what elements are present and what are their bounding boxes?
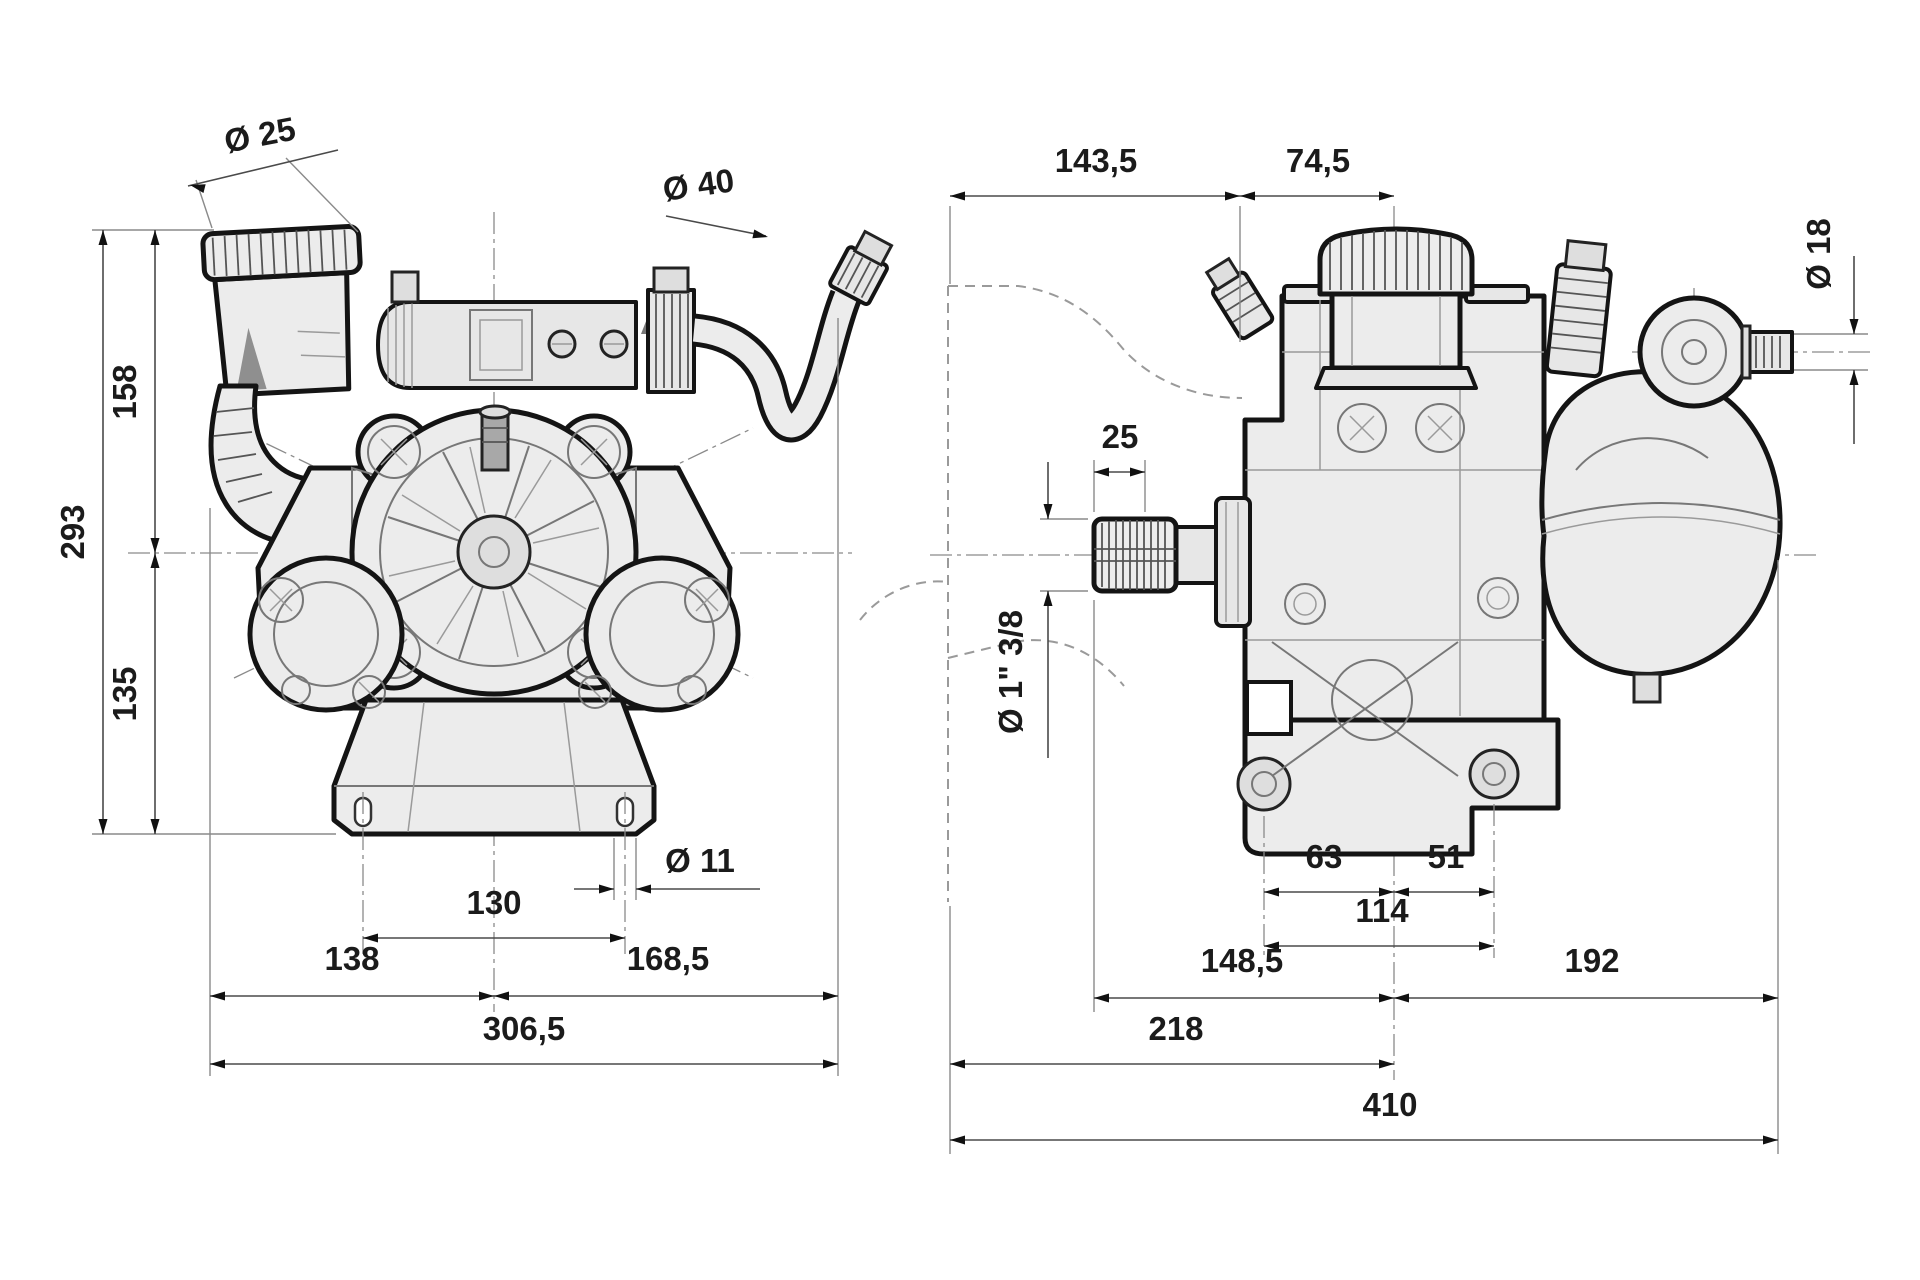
dim-width-left: 138 [324,940,379,977]
pump-technical-drawing: 158 293 135 Ø 25 Ø 40 130 Ø 11 138 168,5 [0,0,1920,1280]
drawing-canvas: 158 293 135 Ø 25 Ø 40 130 Ø 11 138 168,5 [0,0,1920,1280]
diaphragm-cover-left [250,558,402,710]
hose-barb-left [1202,255,1274,340]
dim-center-to-right: 192 [1564,942,1619,979]
dim-shaft-to-center: 148,5 [1201,942,1284,979]
suction-tank [202,226,366,396]
front-view: 158 293 135 Ø 25 Ø 40 130 Ø 11 138 168,5 [54,110,898,1076]
dim-dia-nipple: Ø 18 [1800,218,1837,290]
dim-depth-body-to-tank: 74,5 [1286,142,1350,179]
mounting-base [334,700,654,834]
phantom-outline [860,286,1242,902]
dim-dia-suction: Ø 25 [221,110,298,160]
air-chamber-dome [1542,372,1780,675]
dim-shaft-size: Ø 1" 3/8 [992,610,1029,734]
grease-fitting [480,406,510,470]
dim-foot-right: 51 [1428,838,1465,875]
hose-barb-mid [1546,240,1614,377]
dim-foot-left: 63 [1306,838,1343,875]
dim-dia-outlet: Ø 40 [660,161,736,208]
discharge-hose [648,228,898,426]
dim-height-top: 158 [106,364,143,419]
tank-side [1316,229,1476,388]
dim-foot-spacing: 114 [1355,892,1409,929]
dim-dia-slot: Ø 11 [665,842,735,879]
dim-height-bottom: 135 [106,666,143,721]
dim-spline-length: 25 [1102,418,1139,455]
outlet-port [1640,298,1792,406]
dim-height-total: 293 [54,504,91,559]
dim-depth-total: 410 [1362,1086,1417,1123]
valve-manifold [378,272,663,388]
dim-ref-to-center: 218 [1148,1010,1203,1047]
dim-width-total: 306,5 [483,1010,566,1047]
dim-width-right: 168,5 [627,940,710,977]
pto-shaft [1094,498,1250,626]
dim-hole-spacing: 130 [466,884,521,921]
side-view: 143,5 74,5 Ø 18 25 Ø 1" 3/8 63 51 [860,142,1874,1154]
dim-depth-ref-to-body: 143,5 [1055,142,1138,179]
